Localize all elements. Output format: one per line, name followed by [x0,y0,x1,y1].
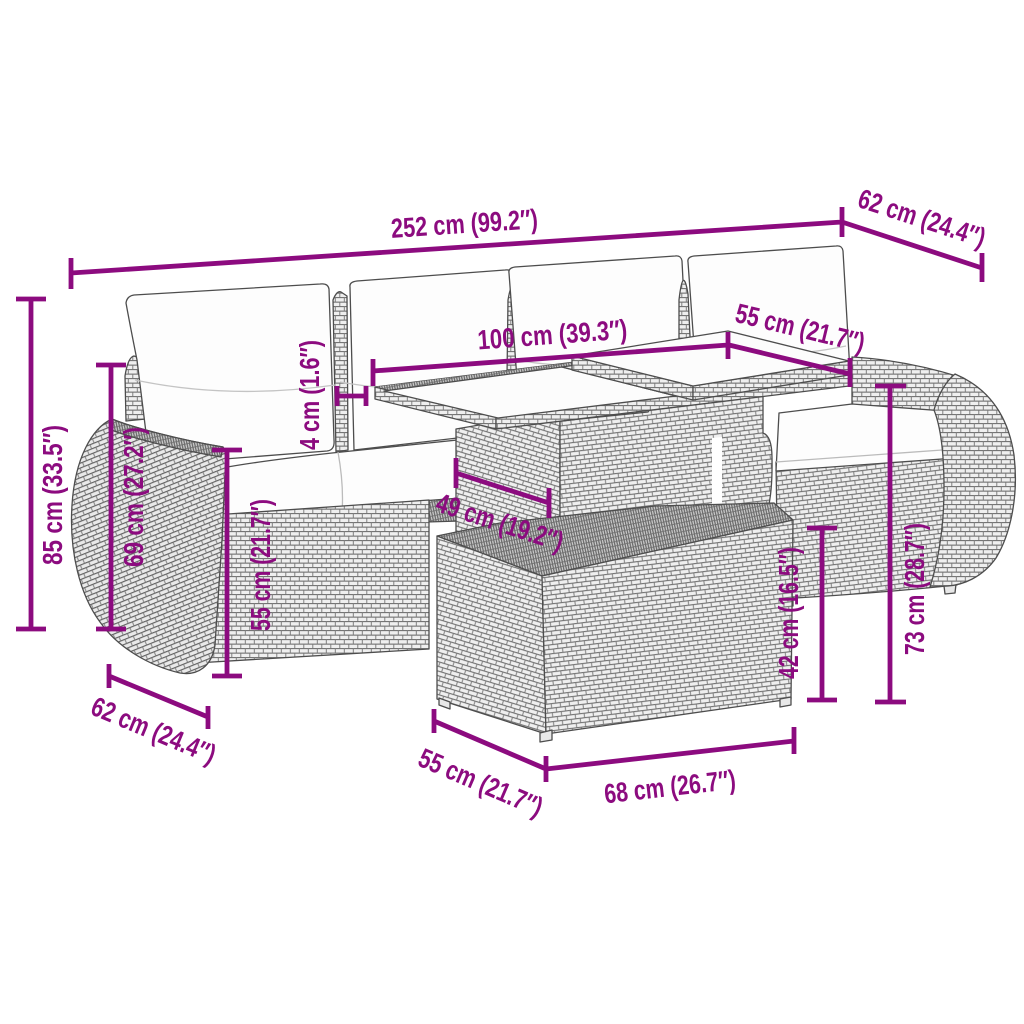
svg-text:73 cm (28.7″): 73 cm (28.7″) [899,523,930,655]
svg-text:85 cm (33.5″): 85 cm (33.5″) [37,425,68,565]
svg-text:69 cm (27.2″): 69 cm (27.2″) [118,427,149,567]
svg-text:4 cm (1.6″): 4 cm (1.6″) [294,340,325,450]
svg-text:42 cm (16.5″): 42 cm (16.5″) [773,547,804,679]
svg-text:55 cm (21.7″): 55 cm (21.7″) [245,499,276,631]
